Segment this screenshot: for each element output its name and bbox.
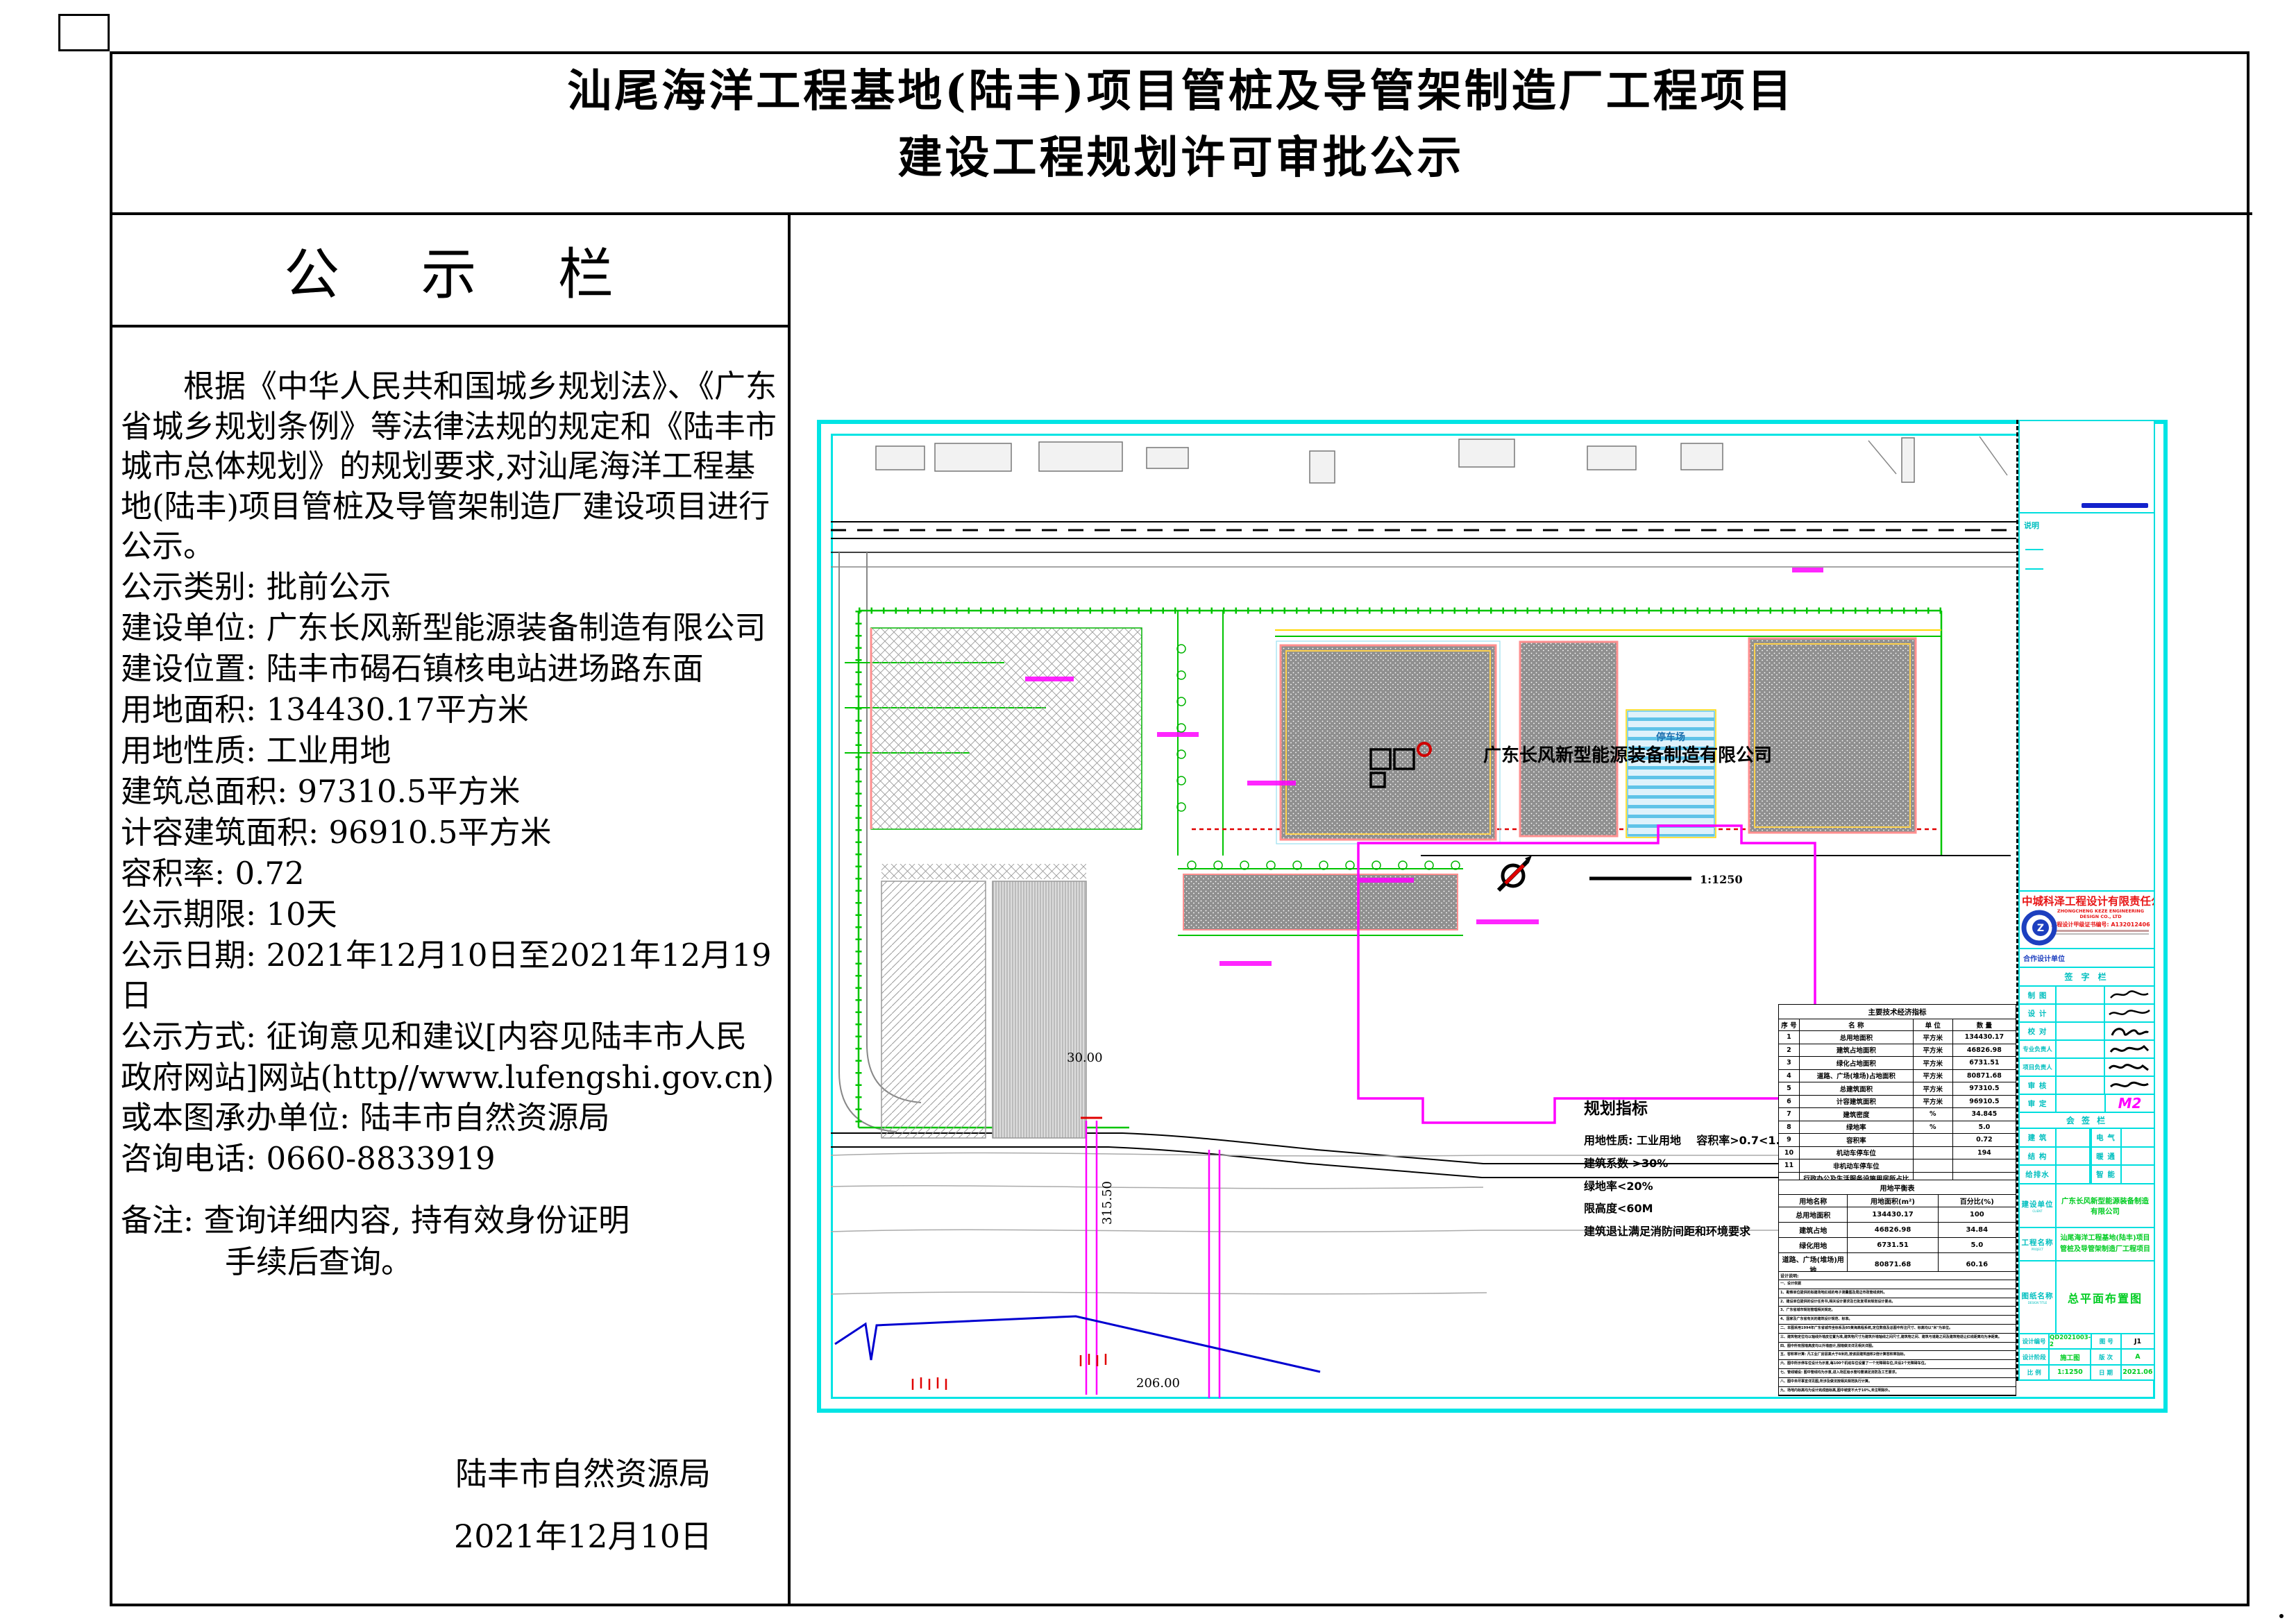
dim-length-label: 315.50: [1100, 1181, 1115, 1225]
table-row: 11非机动车停车位: [1779, 1159, 2016, 1173]
notice-field-line: 建筑总面积: 97310.5平方米: [121, 772, 777, 812]
design-note-lines: 一、设计依据1、勘察单位提供的拟建场地红线的电子测量图及周边市政管线资料。2、建…: [1779, 1280, 2016, 1395]
notice-fields: 公示类别: 批前公示建设单位: 广东长风新型能源装备制造有限公司建设位置: 陆丰…: [121, 567, 777, 1179]
discipline-label: 电 气: [2096, 1132, 2116, 1143]
remark-line2: 手续后查询。: [121, 1241, 777, 1284]
project-cell: 工程名称 PROJECT 汕尾海洋工程基地(陆丰)项目 管桩及导管架制造厂工程项…: [2018, 1228, 2155, 1261]
sig-row-drawn: 制 图: [2018, 987, 2155, 1005]
sig-empty-cell: [2057, 1059, 2105, 1076]
company-logo: Z: [2021, 910, 2057, 946]
grid-row: 设计编号 QD2021003-2 图 号 J1: [2018, 1334, 2155, 1350]
building: [1183, 874, 1458, 930]
client-label-en: CLIENT: [2032, 1209, 2042, 1213]
col-header: 百分比(%): [1938, 1195, 2016, 1207]
project-name-line2: 管桩及导管架制造厂工程项目: [2060, 1244, 2150, 1255]
parking-area: 停车场: [1626, 710, 1716, 838]
sheet-label-en: DESIGN TITLE: [2028, 1301, 2048, 1305]
grid-row: 设计阶段 施工图 版 次 A: [2018, 1350, 2155, 1365]
page-title: 汕尾海洋工程基地(陆丰)项目管桩及导管架制造厂工程项目 建设工程规划许可审批公示: [112, 58, 2249, 215]
grid-label: 比 例: [2027, 1368, 2041, 1377]
sig-row-approve: 审 定 M2: [2018, 1095, 2155, 1113]
title-block: 说明 中城科泽工程设计有限责任公司 ZHONGCHENG KEZE ENGINE…: [2016, 420, 2155, 1381]
grid-value: J1: [2122, 1334, 2154, 1348]
notice-field-line: 公示方式: 征询意见和建议[内容见陆丰市人民政府网站]网站(http//www.…: [121, 1017, 777, 1137]
notice-board: 公 示 栏 根据《中华人民共和国城乡规划法》、《广东省城乡规划条例》等法律法规的…: [110, 215, 791, 1606]
discipline-empty: [2122, 1148, 2154, 1165]
notice-field-line: 建设单位: 广东长风新型能源装备制造有限公司: [121, 608, 777, 648]
approval-mark-text: M2: [2118, 1095, 2142, 1112]
grid-value: QD2021003-2: [2050, 1334, 2092, 1348]
table-row: 3绿化占地面积平方米6731.51: [1779, 1057, 2016, 1070]
grid-label: 日 期: [2099, 1368, 2113, 1377]
table-row: 8绿地率%5.0: [1779, 1121, 2016, 1134]
design-note-line: 七、管线铺设: 图中管线均为示意,进入场区给水管均需满足消防及工艺要求。: [1779, 1369, 2016, 1378]
sig-label: 设 计: [2028, 1008, 2048, 1019]
page-title-line2: 建设工程规划许可审批公示: [112, 125, 2249, 192]
sig-empty-cell: [2057, 1023, 2105, 1039]
waterline-blue: [835, 1316, 1320, 1372]
sig-label: 审 定: [2028, 1098, 2048, 1109]
signature-handwriting: [2105, 1077, 2154, 1094]
table-row: 1总用地面积平方米134430.17: [1779, 1031, 2016, 1044]
signature-handwriting: [2105, 1023, 2154, 1039]
tech-indicator-table: 主要技术经济指标 序 号 名 称 单 位 数 量 1总用地面积平方米134430…: [1778, 1004, 2016, 1194]
page-title-line1: 汕尾海洋工程基地(陆丰)项目管桩及导管架制造厂工程项目: [112, 58, 2249, 125]
grid-value: 施工图: [2050, 1350, 2091, 1363]
design-note-line: 一、设计依据: [1779, 1280, 2016, 1289]
red-tick-clusters: [913, 1354, 1106, 1390]
client-cell: 建设单位 CLIENT 广东长风新型能源装备制造有限公司: [2018, 1184, 2155, 1228]
discipline-empty: [2057, 1166, 2091, 1183]
sheet-name: 总平面布置图: [2057, 1261, 2154, 1333]
discipline-empty: [2122, 1166, 2154, 1183]
grid-label: 版 次: [2099, 1353, 2113, 1361]
notice-remark: 备注: 查询详细内容, 持有效身份证明 手续后查询。: [121, 1200, 777, 1284]
table-row: 绿化用地6731.515.0: [1779, 1238, 2016, 1253]
discipline-row: 建 筑 电 气: [2018, 1129, 2155, 1148]
design-note-line: 二、本图采用1994年广东省城市坐标系及85黄海高程系统,定位数值及总图中所注尺…: [1779, 1325, 2016, 1334]
north-arrow-icon: [1499, 856, 1532, 890]
design-note-line: 2、建设单位提供的设计任务书,相关设计要求及已批复项目规划设计要点。: [1779, 1298, 2016, 1307]
table-row: 总用地面积134430.17100: [1779, 1207, 2016, 1223]
scale-bar: 1:1250: [1589, 873, 1743, 886]
sig-label: 专业负责人: [2023, 1045, 2052, 1053]
col-header: 名 称: [1799, 1019, 1913, 1031]
balance-table-title: 用地平衡表: [1779, 1180, 2016, 1195]
table-row: 4道路、广场(堆场)占地面积平方米80871.68: [1779, 1069, 2016, 1082]
page-dot: [2279, 1614, 2284, 1618]
grid-label: 设计编号: [2022, 1337, 2045, 1345]
design-company-name: 中城科泽工程设计有限责任公司: [2022, 893, 2152, 908]
sig-empty-cell: [2057, 1005, 2105, 1021]
signature-handwriting: [2105, 1005, 2154, 1021]
grid-row: 比 例 1:1250 日 期 2021.06: [2018, 1366, 2155, 1381]
corner-box: [58, 14, 110, 51]
grid-value: 2021.06: [2122, 1366, 2154, 1379]
coop-design-label: 合作设计单位: [2023, 953, 2065, 963]
table-row: 6计容建筑面积平方米96910.5: [1779, 1095, 2016, 1108]
design-note-line: 八、图中未尽事宜详见图,所涉及做法按相关规范执行计算。: [1779, 1378, 2016, 1387]
grid-label: 设计阶段: [2023, 1353, 2046, 1361]
discipline-row: 给排水 智 能: [2018, 1166, 2155, 1184]
sig-empty-cell: [2057, 987, 2105, 1003]
design-note-line: 1、勘察单位提供的拟建场地红线的电子测量图及周边市政管线资料。: [1779, 1289, 2016, 1298]
building: [1520, 642, 1617, 836]
discipline-label: 建 筑: [2028, 1132, 2048, 1143]
notice-field-line: 咨询电话: 0660-8833919: [121, 1139, 777, 1179]
note-dash: [2025, 549, 2043, 550]
discipline-empty: [2057, 1148, 2091, 1165]
design-note-line: 六、图中所示停车位设计为示意,每100个机动车位设置了一个无障碍车位,共设2个无…: [1779, 1360, 2016, 1369]
col-header: 单 位: [1913, 1019, 1952, 1031]
project-name-line1: 汕尾海洋工程基地(陆丰)项目: [2060, 1233, 2150, 1244]
notice-field-line: 用地面积: 134430.17平方米: [121, 690, 777, 730]
sig-empty-cell: [2057, 1041, 2105, 1057]
table-row: 7建筑密度%34.845: [1779, 1108, 2016, 1121]
discipline-label: 暖 通: [2096, 1151, 2116, 1162]
sig-row-check: 校 对: [2018, 1023, 2155, 1041]
grid-value: A: [2122, 1350, 2154, 1363]
notice-field-line: 建设位置: 陆丰市碣石镇核电站进场路东面: [121, 649, 777, 689]
design-note-line: 三、建筑物定位均以轴线外墙皮位置为准,建筑物尺寸为建筑外墙轴线之间尺寸,建筑物之…: [1779, 1334, 2016, 1343]
design-note-line: 五、容积率计算: 凡工业厂房层高大于8米的,按该层建筑面积2倍计算容积率指标。: [1779, 1351, 2016, 1360]
project-label-en: PROJECT: [2032, 1248, 2043, 1251]
notice-paragraph: 根据《中华人民共和国城乡规划法》、《广东省城乡规划条例》等法律法规的规定和《陆丰…: [121, 366, 777, 566]
notice-page: 汕尾海洋工程基地(陆丰)项目管桩及导管架制造厂工程项目 建设工程规划许可审批公示…: [0, 0, 2296, 1623]
design-notes-title: 设计说明:: [1779, 1272, 2016, 1280]
building: [1749, 638, 1916, 833]
sig-row-project-director: 项目负责人: [2018, 1059, 2155, 1077]
sig-row-design: 设 计: [2018, 1005, 2155, 1023]
signature-bar-cell: 签 字 栏: [2018, 968, 2155, 987]
property-boundary-magenta: [1358, 826, 1815, 1123]
client-name: 广东长风新型能源装备制造有限公司: [2057, 1184, 2154, 1227]
land-balance-table: 用地平衡表 用地名称 用地面积(m²) 百分比(%) 总用地面积134430.1…: [1778, 1180, 2016, 1276]
scale-label: 1:1250: [1700, 873, 1743, 886]
sig-empty-cell: [2057, 1095, 2106, 1112]
note-label: 说明: [2024, 521, 2039, 530]
design-notes: 设计说明: 一、设计依据1、勘察单位提供的拟建场地红线的电子测量图及周边市政管线…: [1778, 1271, 2016, 1396]
table-row: 2建筑占地面积平方米46826.98: [1779, 1044, 2016, 1057]
client-label: 建设单位: [2022, 1199, 2054, 1209]
notice-field-line: 用地性质: 工业用地: [121, 731, 777, 771]
notice-field-line: 容积率: 0.72: [121, 853, 777, 894]
fine-print-bar: [2052, 930, 2149, 932]
signature-bar-label: 签 字 栏: [2064, 971, 2109, 983]
offsite-buildings: [876, 436, 2007, 483]
design-note-line: 3、广东省城市规划管理相关规定。: [1779, 1307, 2016, 1316]
table-row: 10机动车停车位194: [1779, 1146, 2016, 1159]
col-header: 序 号: [1779, 1019, 1800, 1031]
tech-table-title: 主要技术经济指标: [1779, 1005, 2016, 1019]
issuing-authority: 陆丰市自然资源局: [389, 1449, 777, 1495]
sig-row-review: 审 核: [2018, 1077, 2155, 1095]
design-note-line: 九、场地内标高均为设计完成面标高,图中坡度不大于10%,未注明除外。: [1779, 1387, 2016, 1396]
remark-line1: 备注: 查询详细内容, 持有效身份证明: [121, 1200, 777, 1242]
notice-field-line: 公示日期: 2021年12月10日至2021年12月19日: [121, 935, 777, 1016]
approval-mark: M2: [2106, 1095, 2154, 1112]
discipline-empty: [2057, 1129, 2091, 1146]
sig-label: 项目负责人: [2023, 1063, 2052, 1071]
owner-label: 广东长风新型能源装备制造有限公司: [1483, 745, 1772, 766]
design-note-line: 四、图中所有围墙高度均以外墙面计,围墙做法详见相关详图。: [1779, 1343, 2016, 1352]
sig-row-specialty-director: 专业负责人: [2018, 1041, 2155, 1059]
countersign-bar: 会 签 栏: [2018, 1113, 2155, 1129]
col-header: 用地名称: [1779, 1195, 1848, 1207]
coop-design-cell: 合作设计单位: [2018, 949, 2155, 968]
design-company-cell: 中城科泽工程设计有限责任公司 ZHONGCHENG KEZE ENGINEERI…: [2018, 892, 2155, 949]
notice-field-line: 计容建筑面积: 96910.5平方米: [121, 813, 777, 853]
sig-label: 校 对: [2028, 1026, 2048, 1037]
signature-handwriting: [2105, 1041, 2154, 1057]
notice-field-line: 公示类别: 批前公示: [121, 567, 777, 607]
parking-label: 停车场: [1656, 731, 1685, 743]
notice-board-title: 公 示 栏: [252, 230, 645, 310]
notice-board-body: 根据《中华人民共和国城乡规划法》、《广东省城乡规划条例》等法律法规的规定和《陆丰…: [121, 366, 777, 1284]
col-header: 数 量: [1952, 1019, 2016, 1031]
countersign-label: 会 签 栏: [2066, 1114, 2107, 1126]
building: [1281, 645, 1496, 840]
col-header: 用地面积(m²): [1848, 1195, 1938, 1207]
dim-bottom-label: 206.00: [1136, 1376, 1180, 1391]
sheet-label: 图纸名称: [2022, 1291, 2054, 1301]
discipline-label: 结 构: [2028, 1151, 2048, 1162]
design-certificate-no: 工程设计甲级证书编号: A132012406: [2050, 921, 2152, 928]
notice-field-line: 公示期限: 10天: [121, 894, 777, 935]
design-company-name-en: ZHONGCHENG KEZE ENGINEERING DESIGN CO., …: [2050, 908, 2152, 919]
note-dash: [2025, 568, 2043, 570]
grid-label: 图 号: [2100, 1337, 2113, 1345]
dim-width-label: 30.00: [1067, 1051, 1103, 1065]
sig-label: 审 核: [2028, 1080, 2048, 1091]
table-row: 建筑占地46826.9834.84: [1779, 1223, 2016, 1238]
discipline-row: 结 构 暖 通: [2018, 1148, 2155, 1166]
titleblock-note-cell: 说明: [2018, 513, 2155, 892]
discipline-label: 智 能: [2096, 1169, 2116, 1180]
project-label: 工程名称: [2022, 1237, 2054, 1248]
svg-text:Z: Z: [2037, 923, 2044, 934]
discipline-label: 给排水: [2025, 1169, 2050, 1180]
titleblock-blank-cell: [2018, 420, 2155, 513]
issue-date: 2021年12月10日: [389, 1511, 777, 1557]
grid-value: 1:1250: [2050, 1366, 2091, 1379]
fine-print-bar: [2052, 933, 2149, 935]
table-row: 9容积率0.72: [1779, 1134, 2016, 1147]
sig-label: 制 图: [2028, 990, 2048, 1001]
design-note-line: 4、国家及广东省有关的建筑设计规范、标准。: [1779, 1316, 2016, 1325]
signature-handwriting: [2105, 987, 2154, 1003]
table-row: 5总建筑面积平方米97310.5: [1779, 1082, 2016, 1096]
discipline-empty: [2122, 1129, 2154, 1146]
copyright-note-bar: [2082, 503, 2148, 508]
notice-board-header-box: 公 示 栏: [110, 215, 788, 328]
sheet-name-cell: 图纸名称 DESIGN TITLE 总平面布置图: [2018, 1261, 2155, 1334]
signature-handwriting: [2105, 1059, 2154, 1076]
sig-empty-cell: [2057, 1077, 2105, 1094]
